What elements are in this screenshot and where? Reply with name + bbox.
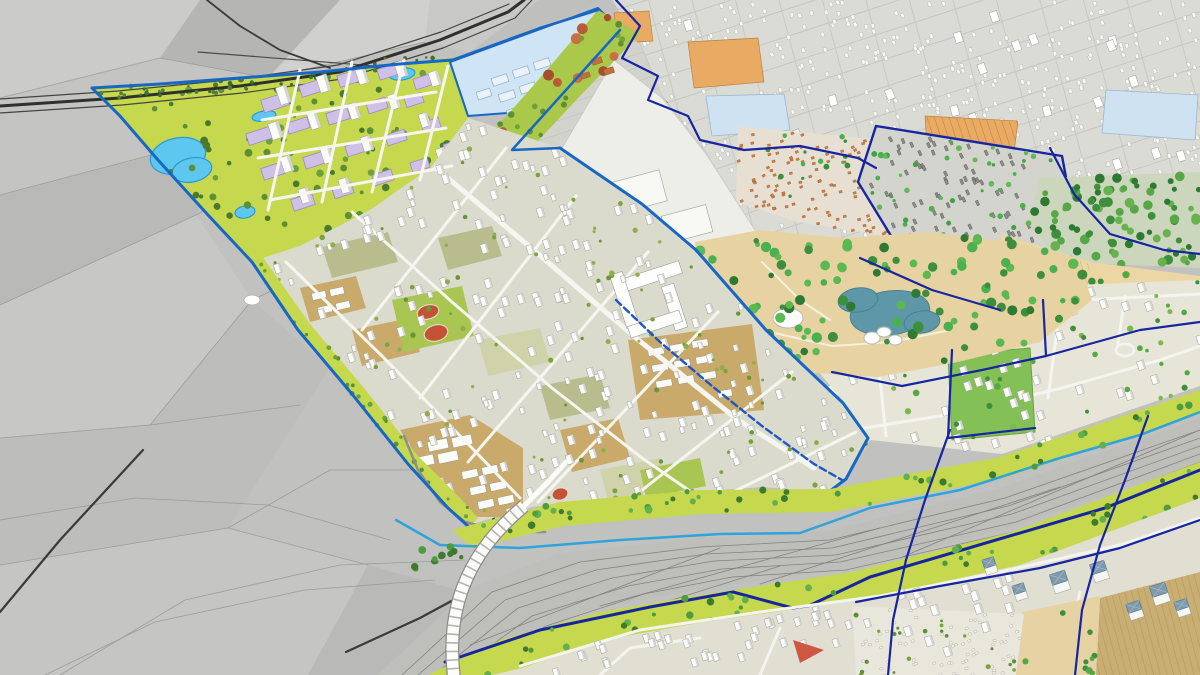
map-canvas [0, 0, 1200, 675]
masterplan-aerial-rendering [0, 0, 1200, 675]
